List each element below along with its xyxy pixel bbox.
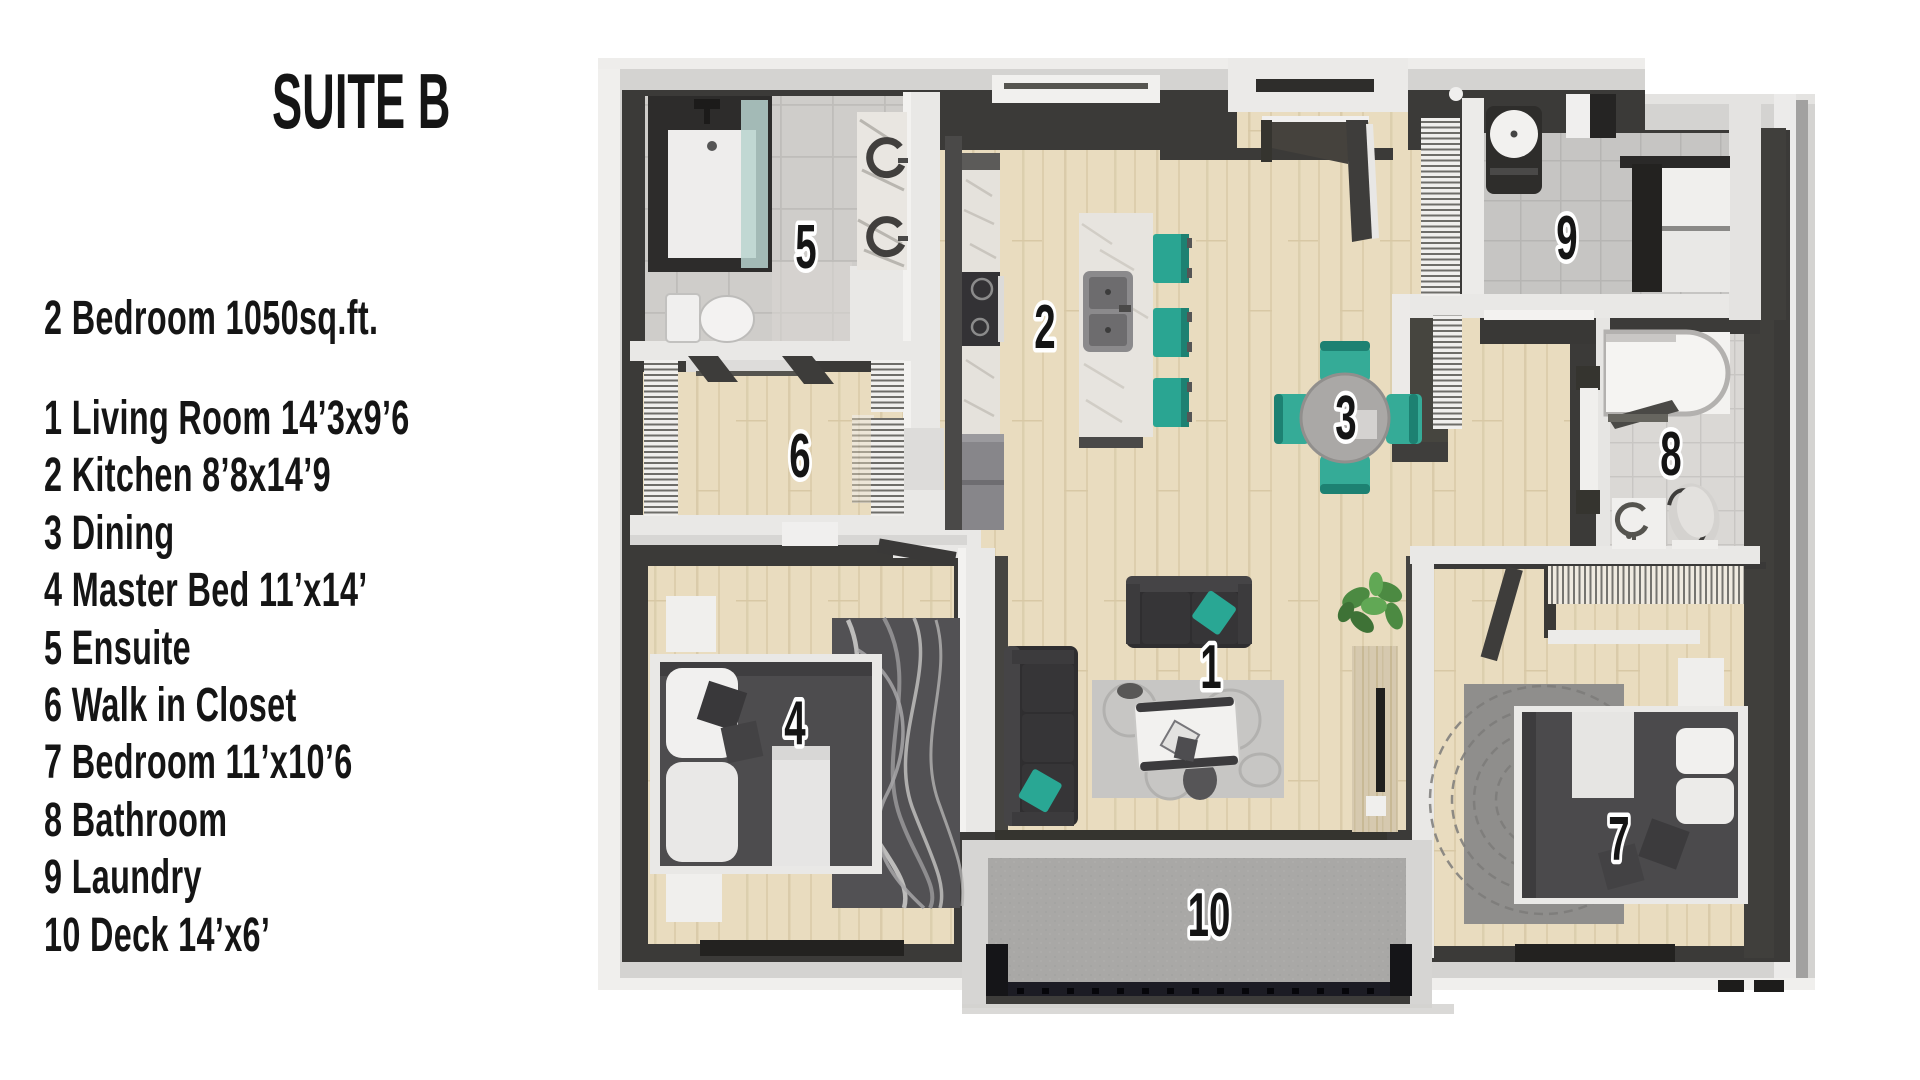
svg-text:1: 1 bbox=[1200, 632, 1221, 702]
svg-text:6: 6 bbox=[789, 421, 810, 491]
svg-text:8: 8 bbox=[1660, 419, 1681, 489]
svg-text:8 Bathroom: 8 Bathroom bbox=[44, 793, 227, 847]
svg-text:2 Kitchen 8’8x14’9: 2 Kitchen 8’8x14’9 bbox=[44, 448, 331, 502]
svg-text:5 Ensuite: 5 Ensuite bbox=[44, 621, 191, 675]
svg-text:6 Walk in Closet: 6 Walk in Closet bbox=[44, 678, 297, 732]
svg-text:4: 4 bbox=[784, 688, 806, 758]
svg-text:4 Master Bed 11’x14’: 4 Master Bed 11’x14’ bbox=[44, 563, 368, 617]
svg-text:10: 10 bbox=[1188, 880, 1231, 950]
svg-text:7 Bedroom 11’x10’6: 7 Bedroom 11’x10’6 bbox=[44, 735, 353, 789]
svg-text:7: 7 bbox=[1608, 804, 1629, 874]
svg-text:3: 3 bbox=[1335, 383, 1356, 453]
svg-text:2 Bedroom 1050sq.ft.: 2 Bedroom 1050sq.ft. bbox=[44, 291, 378, 345]
svg-text:5: 5 bbox=[795, 212, 816, 282]
svg-text:2: 2 bbox=[1034, 292, 1055, 362]
svg-text:10 Deck 14’x6’: 10 Deck 14’x6’ bbox=[44, 908, 270, 962]
svg-text:3 Dining: 3 Dining bbox=[44, 506, 174, 560]
svg-text:9: 9 bbox=[1556, 203, 1577, 273]
svg-text:9 Laundry: 9 Laundry bbox=[44, 850, 202, 904]
svg-text:1 Living Room 14’3x9’6: 1 Living Room 14’3x9’6 bbox=[44, 391, 410, 445]
svg-text:SUITE B: SUITE B bbox=[272, 57, 450, 145]
